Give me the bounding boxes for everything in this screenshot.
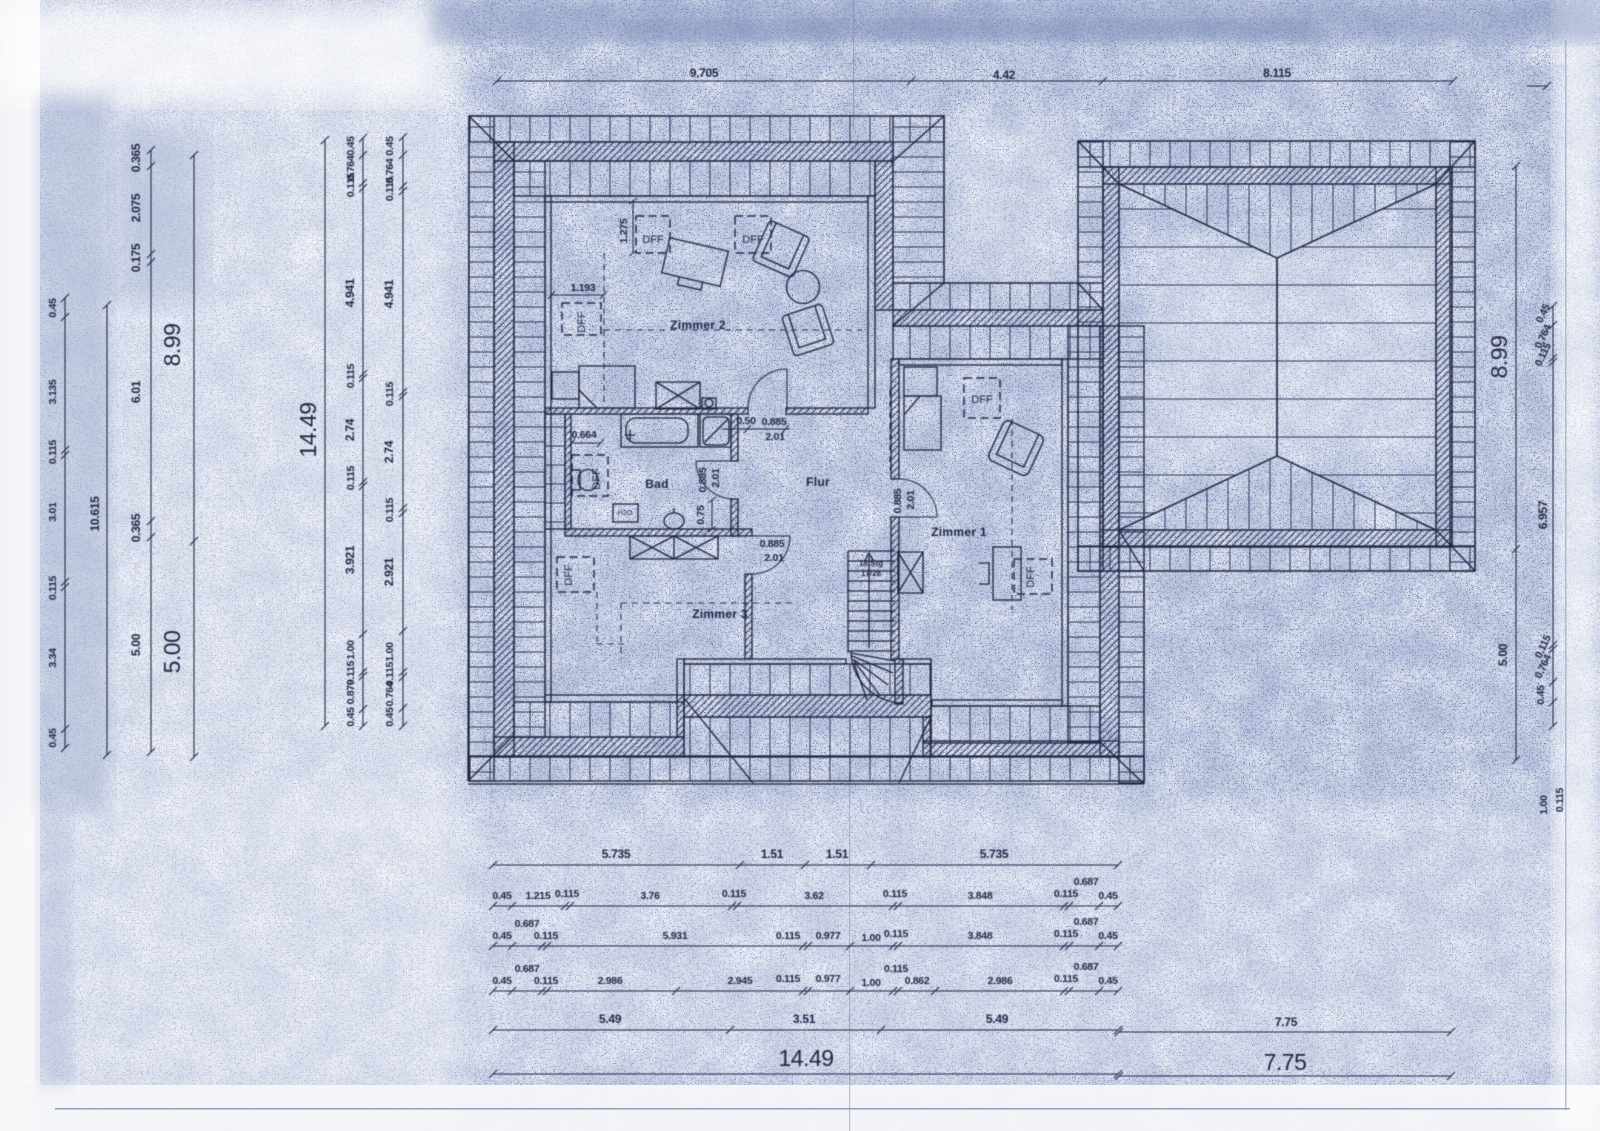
svg-text:0.115: 0.115 xyxy=(345,465,357,490)
svg-text:5.931: 5.931 xyxy=(663,930,688,942)
svg-text:0.365: 0.365 xyxy=(129,513,143,542)
svg-text:0.115: 0.115 xyxy=(1554,787,1566,812)
svg-text:0.115: 0.115 xyxy=(534,975,559,987)
svg-text:3.848: 3.848 xyxy=(968,890,993,902)
svg-text:0.687: 0.687 xyxy=(1074,876,1099,888)
svg-text:DFF: DFF xyxy=(576,311,588,333)
svg-text:0.45: 0.45 xyxy=(1098,930,1118,942)
svg-text:0.687: 0.687 xyxy=(515,918,540,930)
svg-text:0.45: 0.45 xyxy=(492,975,512,987)
svg-text:DFF: DFF xyxy=(971,394,993,406)
svg-text:0.115: 0.115 xyxy=(722,888,747,900)
svg-text:0.115: 0.115 xyxy=(345,363,357,388)
svg-text:0.885: 0.885 xyxy=(892,488,904,513)
svg-text:3.01: 3.01 xyxy=(47,502,59,522)
svg-text:0.45: 0.45 xyxy=(1098,975,1118,987)
svg-text:0.115: 0.115 xyxy=(384,661,396,686)
svg-text:0.115: 0.115 xyxy=(1054,973,1079,985)
svg-text:10.615: 10.615 xyxy=(88,496,102,532)
svg-text:0.115: 0.115 xyxy=(884,963,909,975)
svg-text:2.74: 2.74 xyxy=(382,440,396,463)
svg-text:0.115: 0.115 xyxy=(534,930,559,942)
svg-text:0.115: 0.115 xyxy=(1054,888,1079,900)
svg-text:3.921: 3.921 xyxy=(343,545,357,574)
svg-text:0.115: 0.115 xyxy=(555,888,580,900)
svg-text:0.977: 0.977 xyxy=(816,973,841,985)
svg-text:5.735: 5.735 xyxy=(980,847,1009,861)
svg-text:9.705: 9.705 xyxy=(690,66,719,80)
svg-text:2.986: 2.986 xyxy=(598,975,623,987)
svg-text:0.45: 0.45 xyxy=(384,136,396,156)
svg-text:0.365: 0.365 xyxy=(129,143,143,172)
svg-text:0.687: 0.687 xyxy=(515,963,540,975)
svg-text:2.01: 2.01 xyxy=(905,490,917,510)
svg-text:3.135: 3.135 xyxy=(47,379,59,404)
svg-text:1.51: 1.51 xyxy=(826,847,849,861)
svg-text:1.00: 1.00 xyxy=(1538,795,1550,815)
svg-text:0.862: 0.862 xyxy=(905,975,930,987)
svg-text:Flur: Flur xyxy=(806,475,830,489)
svg-text:0.977: 0.977 xyxy=(816,930,841,942)
svg-text:14.49: 14.49 xyxy=(295,402,321,457)
svg-text:2.01: 2.01 xyxy=(764,552,784,564)
svg-text:5.00: 5.00 xyxy=(1496,643,1510,666)
svg-text:0.115: 0.115 xyxy=(47,439,59,464)
svg-text:2.986: 2.986 xyxy=(988,975,1013,987)
svg-text:0.885: 0.885 xyxy=(760,538,785,550)
svg-text:6.01: 6.01 xyxy=(129,380,143,403)
svg-text:0.115: 0.115 xyxy=(776,930,801,942)
svg-text:2.945: 2.945 xyxy=(728,975,753,987)
svg-text:5.49: 5.49 xyxy=(986,1012,1009,1026)
svg-text:8.115: 8.115 xyxy=(1263,66,1291,80)
svg-text:0.885: 0.885 xyxy=(762,416,787,428)
svg-text:0.115: 0.115 xyxy=(345,660,357,685)
svg-text:4.941: 4.941 xyxy=(343,278,357,307)
svg-text:0.50: 0.50 xyxy=(736,415,756,427)
svg-text:0.687: 0.687 xyxy=(1074,916,1099,928)
svg-text:6.957: 6.957 xyxy=(1536,500,1550,529)
svg-text:0.45: 0.45 xyxy=(47,728,59,748)
svg-text:5.49: 5.49 xyxy=(599,1012,622,1026)
svg-text:1.215: 1.215 xyxy=(526,890,551,902)
svg-text:Zimmer 2: Zimmer 2 xyxy=(670,318,726,332)
svg-text:0.115: 0.115 xyxy=(384,497,396,522)
svg-text:3.76: 3.76 xyxy=(640,890,660,902)
svg-text:1.00: 1.00 xyxy=(384,642,396,662)
svg-text:1.275: 1.275 xyxy=(618,218,630,243)
svg-text:DFF: DFF xyxy=(1025,566,1037,588)
svg-text:5.00: 5.00 xyxy=(129,633,143,656)
svg-text:3.848: 3.848 xyxy=(968,930,993,942)
svg-text:0.45: 0.45 xyxy=(1535,685,1547,705)
svg-text:0.75: 0.75 xyxy=(695,505,707,525)
svg-text:0.764: 0.764 xyxy=(345,155,357,180)
svg-text:7.75: 7.75 xyxy=(1264,1049,1307,1075)
svg-text:2.075: 2.075 xyxy=(129,193,143,222)
svg-text:DFF: DFF xyxy=(742,234,764,246)
svg-text:H2O: H2O xyxy=(618,510,633,517)
svg-text:0.45: 0.45 xyxy=(492,890,512,902)
svg-text:1.193: 1.193 xyxy=(571,282,596,294)
svg-text:Zimmer 3: Zimmer 3 xyxy=(692,607,748,621)
svg-text:4.42: 4.42 xyxy=(993,68,1016,82)
svg-text:1.51: 1.51 xyxy=(761,847,784,861)
svg-text:2.01: 2.01 xyxy=(765,431,785,443)
svg-text:0.664: 0.664 xyxy=(572,429,597,441)
svg-text:2.921: 2.921 xyxy=(382,557,396,586)
svg-text:0.115: 0.115 xyxy=(883,888,908,900)
svg-text:0.45: 0.45 xyxy=(492,930,512,942)
svg-text:17/28: 17/28 xyxy=(861,569,882,578)
svg-text:5.735: 5.735 xyxy=(602,847,631,861)
svg-text:0.885: 0.885 xyxy=(697,467,709,492)
svg-text:0.45: 0.45 xyxy=(384,707,396,727)
svg-text:1.00: 1.00 xyxy=(861,932,881,944)
svg-text:0.175: 0.175 xyxy=(129,243,143,272)
svg-text:0.687: 0.687 xyxy=(1074,961,1099,973)
svg-text:0.45: 0.45 xyxy=(1098,890,1118,902)
svg-text:3.51: 3.51 xyxy=(793,1012,816,1026)
svg-text:DFF: DFF xyxy=(591,468,603,490)
svg-text:8.99: 8.99 xyxy=(1486,336,1512,379)
svg-text:0.764: 0.764 xyxy=(384,158,396,183)
svg-text:4.941: 4.941 xyxy=(382,279,396,308)
svg-text:8.99: 8.99 xyxy=(159,324,185,367)
svg-text:0.115: 0.115 xyxy=(776,973,801,985)
svg-text:7.75: 7.75 xyxy=(1275,1015,1298,1029)
svg-text:0.115: 0.115 xyxy=(384,381,396,406)
svg-text:18 Stg: 18 Stg xyxy=(859,559,883,568)
svg-text:5.00: 5.00 xyxy=(159,631,185,674)
svg-text:0.45: 0.45 xyxy=(47,298,59,318)
svg-text:3.62: 3.62 xyxy=(804,890,824,902)
svg-text:0.45: 0.45 xyxy=(345,707,357,727)
svg-text:0.45: 0.45 xyxy=(345,136,357,156)
svg-text:1.00: 1.00 xyxy=(861,977,881,989)
svg-text:14.49: 14.49 xyxy=(778,1045,833,1071)
svg-text:2.01: 2.01 xyxy=(710,468,722,488)
svg-text:Zimmer 1: Zimmer 1 xyxy=(931,525,987,539)
svg-text:2.74: 2.74 xyxy=(343,418,357,441)
svg-text:DFF: DFF xyxy=(563,564,575,586)
svg-text:Bad: Bad xyxy=(645,477,669,491)
svg-text:0.115: 0.115 xyxy=(884,928,909,940)
svg-text:1.00: 1.00 xyxy=(345,640,357,660)
svg-text:0.115: 0.115 xyxy=(1054,928,1079,940)
svg-text:DFF: DFF xyxy=(642,234,664,246)
svg-text:3.34: 3.34 xyxy=(47,648,59,668)
svg-text:0.115: 0.115 xyxy=(47,575,59,600)
